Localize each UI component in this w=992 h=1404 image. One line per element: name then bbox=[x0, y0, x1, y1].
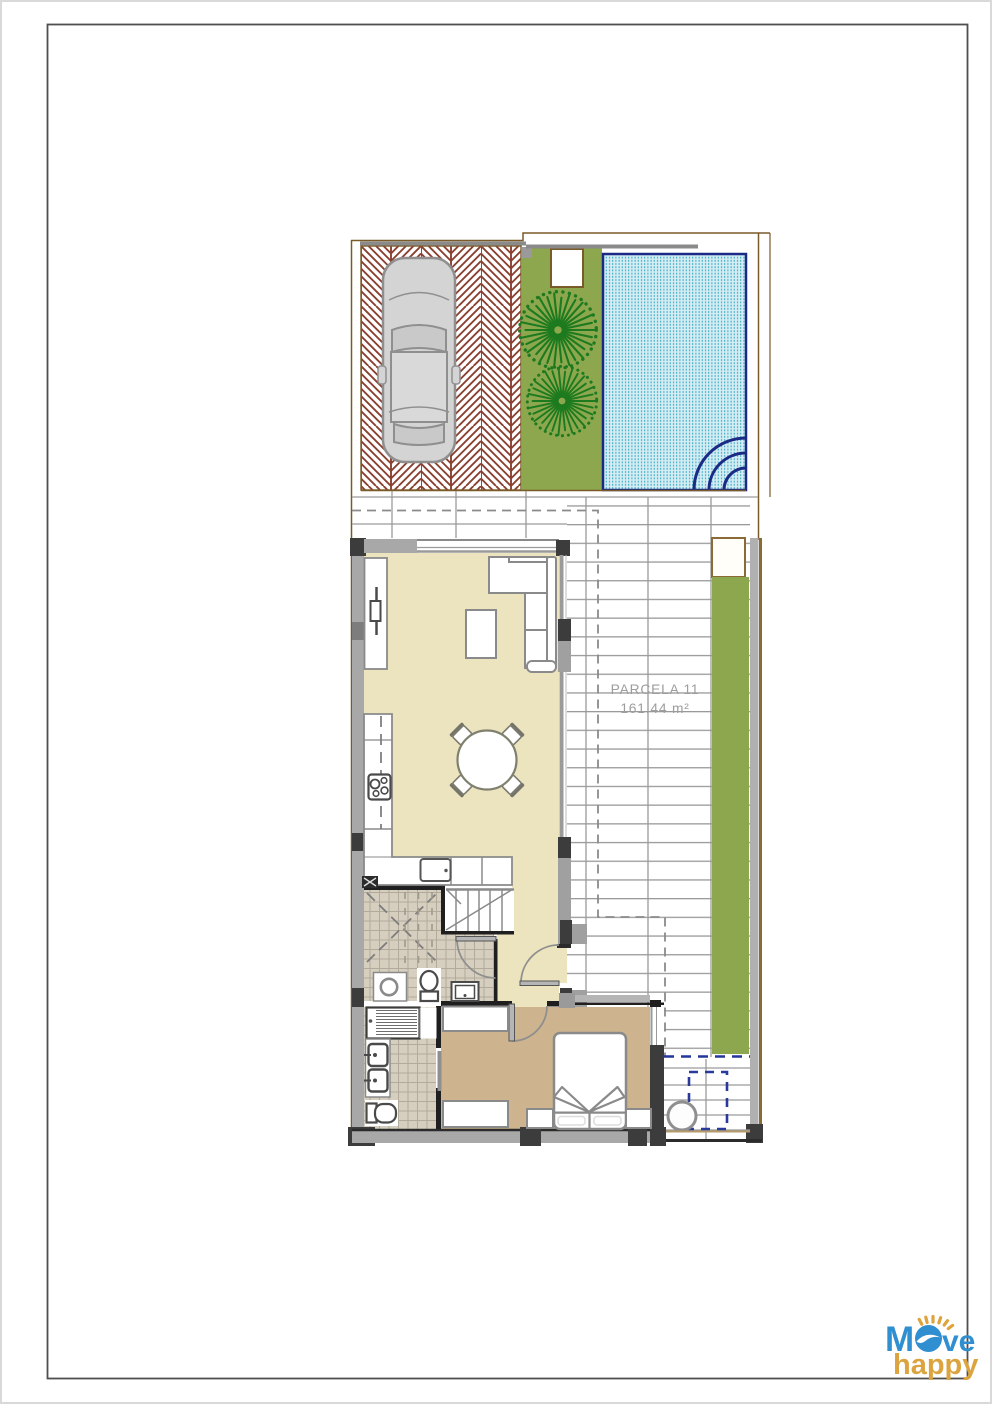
svg-text:happy: happy bbox=[893, 1349, 978, 1381]
svg-text:161.44 m²: 161.44 m² bbox=[620, 701, 689, 716]
svg-text:PARCELA 11: PARCELA 11 bbox=[611, 682, 700, 697]
